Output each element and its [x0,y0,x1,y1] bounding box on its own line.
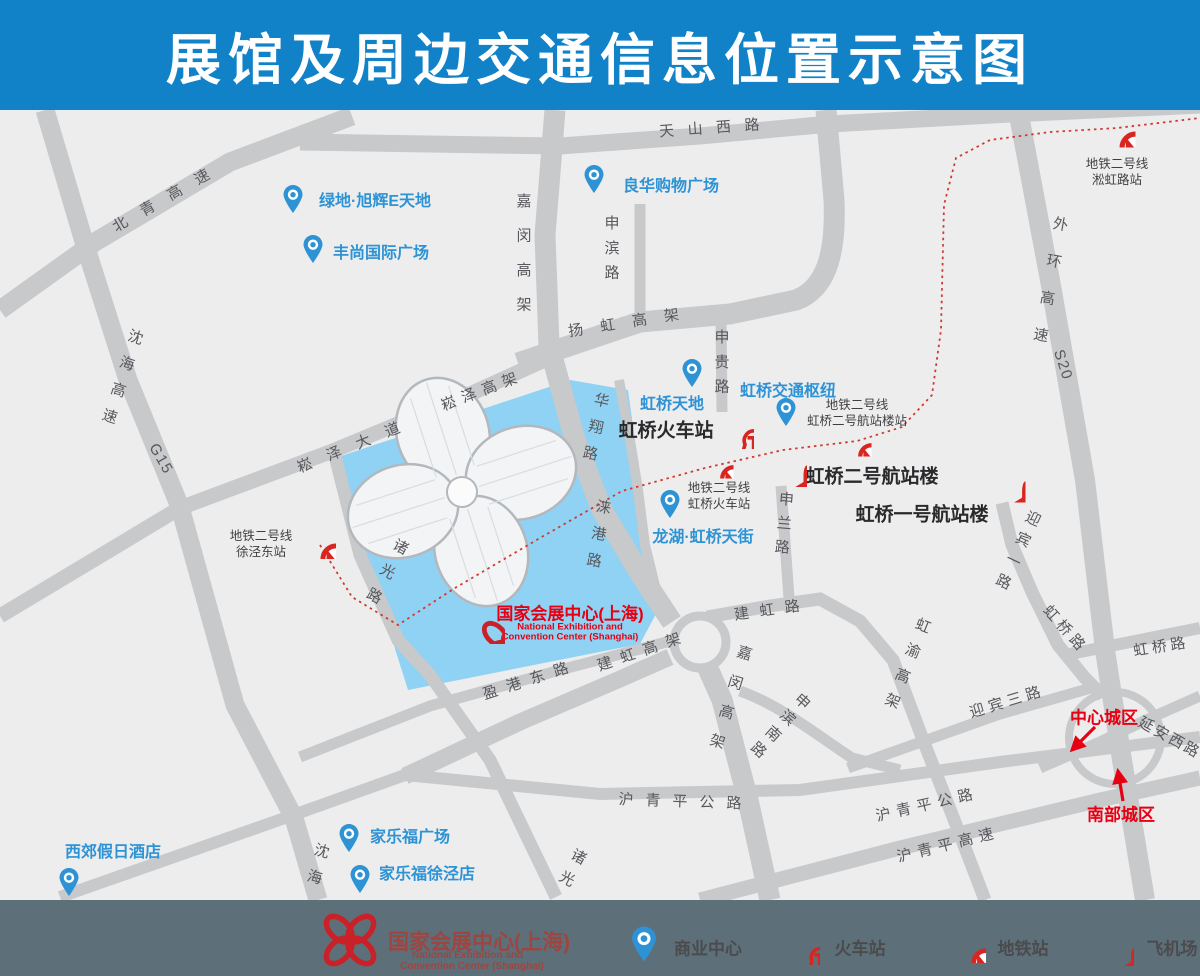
metro-label-songhong-road-station: 地铁二号线淞虹路站 [1086,156,1149,189]
road-label-jiamin-elevated-north: 嘉闵高架 [513,193,534,331]
landmark-label-hongqiao-railway-station: 虹桥火车站 [618,416,713,443]
district-label-southern-district: 南部城区 [1087,801,1155,826]
poi-label-fengshang-intl-plaza: 丰尚国际广场 [333,239,429,263]
poi-pin-icon-fengshang-intl-plaza [301,234,325,264]
metro-label-line: 地铁二号线 [807,397,907,413]
legend-necc-latin2: Convention Center (Shanghai) [400,961,544,972]
necc-map-logo [449,588,505,644]
metro-label-xujingdong-station: 地铁二号线徐泾东站 [230,528,293,561]
poi-label-hongqiao-tiandi: 虹桥天地 [640,390,704,414]
metro-label-line: 地铁二号线 [688,480,751,496]
poi-pin-icon-greenland-xuhui-e-world [281,184,305,214]
poi-pin-icon-carrefour-plaza [337,823,361,853]
plane-icon-terminal-1 [979,456,1026,503]
poi-pin-icon-xijiao-holiday-hotel [57,867,81,897]
title-bar: 展馆及周边交通信息位置示意图 [0,0,1200,110]
legend-metro-icon-metro-station [952,929,986,963]
necc-map-latin2: Convention Center (Shanghai) [502,632,639,643]
poi-label-xijiao-holiday-hotel: 西郊假日酒店 [65,838,161,862]
necc-logo [318,908,382,972]
legend-pin-icon-commercial-center [629,925,659,963]
legend-train-icon-railway-station [784,929,820,965]
landmark-label-terminal-2: 虹桥二号航站楼 [805,462,938,489]
poi-label-carrefour-plaza: 家乐福广场 [370,823,450,847]
legend-label-airport: 飞机场 [1147,935,1198,960]
plane-icon-terminal-2 [759,439,807,487]
page: 展馆及周边交通信息位置示意图 [0,0,1200,976]
legend-label-metro-station: 地铁站 [998,935,1049,960]
poi-pin-icon-lianghua-shopping-plaza [582,164,606,194]
legend-label-commercial-center: 商业中心 [674,935,742,960]
poi-pin-icon-carrefour-xujing [348,864,372,894]
metro-icon-hongqiao-railway-metro [703,448,734,479]
metro-icon-xujingdong-station [300,523,336,559]
road-label-shengui-road: 申贵路 [711,329,732,403]
legend-plane-icon-airport [1094,926,1134,966]
metro-label-line: 地铁二号线 [1086,156,1149,172]
metro-label-line: 地铁二号线 [230,528,293,544]
poi-label-longfor-paradise-walk: 龙湖·虹桥天街 [652,523,753,547]
district-label-central-district: 中心城区 [1070,704,1138,729]
legend-label-railway-station: 火车站 [835,935,886,960]
metro-label-line: 徐泾东站 [230,544,293,560]
page-title: 展馆及周边交通信息位置示意图 [166,15,1034,95]
poi-label-lianghua-shopping-plaza: 良华购物广场 [623,172,719,196]
metro-label-line: 虹桥火车站 [688,496,751,512]
legend-necc-latin1: National Exhibition and [412,950,523,961]
poi-pin-icon-hongqiao-tiandi [680,358,704,388]
poi-label-greenland-xuhui-e-world: 绿地·旭辉E天地 [319,187,431,211]
landmark-label-terminal-1: 虹桥一号航站楼 [855,500,988,527]
legend-bar: 国家会展中心(上海) National Exhibition and Conve… [0,900,1200,976]
map-canvas: 国家会展中心(上海) National Exhibition and Conve… [0,110,1200,900]
poi-pin-icon-longfor-paradise-walk [658,489,682,519]
metro-label-line: 淞虹路站 [1086,172,1149,188]
train-icon-hongqiao-railway-station [714,409,754,449]
metro-icon-songhong-road-station [1099,111,1136,148]
poi-label-carrefour-xujing: 家乐福徐泾店 [379,860,475,884]
metro-label-hongqiao-railway-metro: 地铁二号线虹桥火车站 [688,480,751,513]
metro-icon-terminal2-metro-station [841,426,872,457]
road-label-shenbin-road: 申滨路 [601,215,622,289]
poi-pin-icon-hongqiao-transport-hub [774,397,798,427]
metro-label-terminal2-metro-station: 地铁二号线虹桥二号航站楼站 [807,397,907,430]
